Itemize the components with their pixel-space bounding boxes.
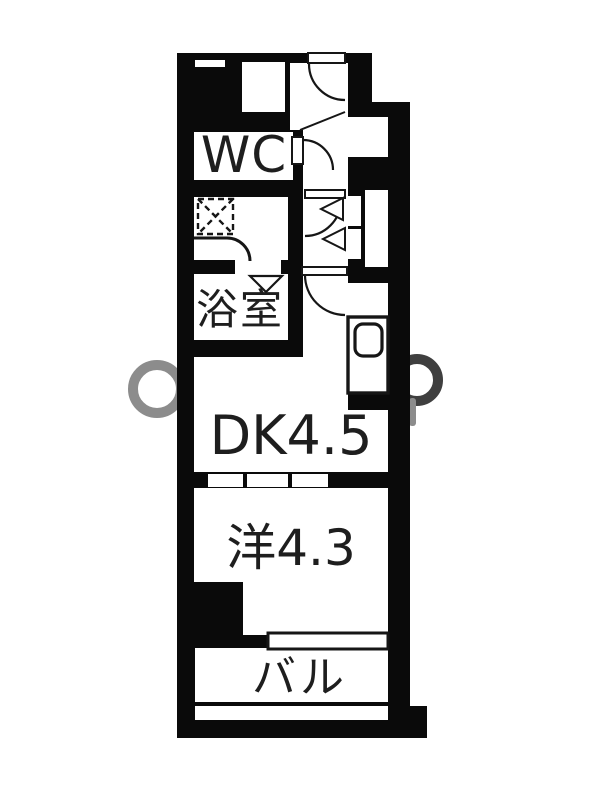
storage-tall-cell [365, 190, 388, 267]
entry-hall-floor [290, 63, 348, 130]
floor-plan-svg: WC 浴室 DK4.5 洋4.3 バル [0, 0, 600, 800]
sliding-door-panel-1 [208, 474, 243, 487]
floor-plan-image: WC 浴室 DK4.5 洋4.3 バル [0, 0, 600, 800]
watermark-letter-stub [409, 398, 416, 426]
entry-pocket-floor [348, 117, 388, 157]
balcony-label: バル [252, 652, 348, 703]
western-room-label: 洋4.3 [226, 519, 356, 577]
sliding-door-panel-2 [247, 474, 288, 487]
bath-label: 浴室 [196, 285, 284, 334]
wc-label: WC [201, 126, 287, 184]
storage-leaf-cell-a [346, 196, 361, 226]
washing-machine-icon [355, 324, 382, 356]
kitchen-floor [194, 197, 288, 260]
entrance-door-leaf [308, 53, 345, 63]
wc-door-leaf [292, 137, 303, 164]
sliding-door-panel-3 [292, 474, 328, 487]
storage-leaf-cell-b [346, 229, 361, 259]
dk-floor-upper-hall [303, 275, 348, 357]
dk-door-frame [302, 267, 347, 275]
dk-label: DK4.5 [210, 404, 373, 467]
balcony-window [268, 633, 388, 649]
entry-closet-floor [242, 62, 285, 112]
western-room-step-wall [194, 582, 243, 635]
wall-bottom-right-block [388, 706, 427, 738]
balcony-outer-strip [195, 706, 388, 720]
washroom-door-leaf [305, 190, 345, 198]
vent-slit [195, 60, 225, 67]
bath-door-gap [235, 259, 281, 274]
